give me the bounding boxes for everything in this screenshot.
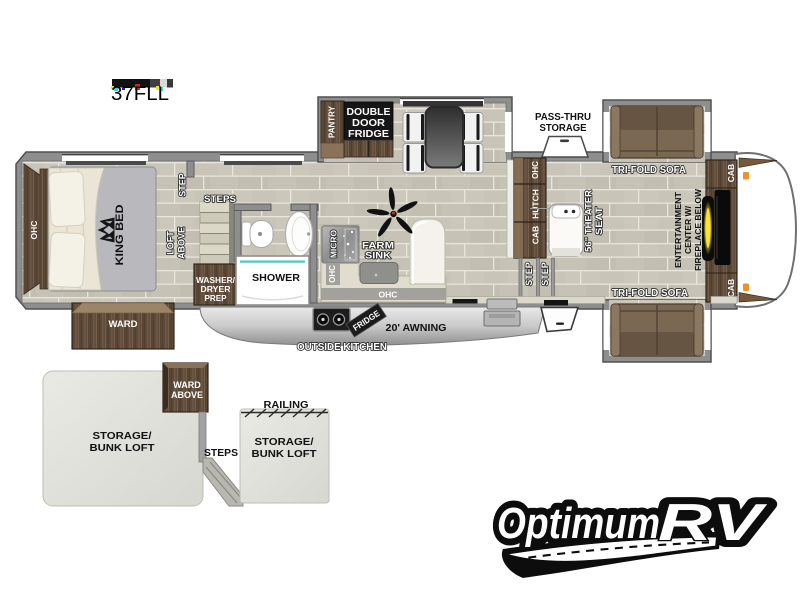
svg-text:OHC: OHC: [531, 161, 540, 179]
svg-text:37FLL: 37FLL: [111, 83, 169, 105]
svg-text:HUTCH: HUTCH: [530, 189, 540, 219]
svg-text:FIREPLACE BELOW: FIREPLACE BELOW: [694, 189, 703, 271]
svg-text:20' AWNING: 20' AWNING: [386, 322, 447, 334]
svg-text:STEP: STEP: [540, 262, 550, 286]
svg-text:WASHER/: WASHER/: [196, 276, 236, 285]
svg-text:WARD: WARD: [108, 319, 137, 330]
svg-text:TRI-FOLD SOFA: TRI-FOLD SOFA: [612, 288, 688, 299]
svg-text:STORAGE/: STORAGE/: [93, 430, 152, 442]
svg-text:DOOR: DOOR: [352, 118, 386, 129]
svg-text:CAB: CAB: [726, 279, 736, 297]
svg-text:STEP: STEP: [524, 262, 534, 286]
svg-text:OHC: OHC: [379, 290, 398, 300]
svg-text:OHC: OHC: [29, 221, 39, 240]
svg-text:SINK: SINK: [365, 251, 392, 261]
svg-text:STEP: STEP: [177, 173, 187, 197]
svg-text:OUTSIDE KITCHEN: OUTSIDE KITCHEN: [297, 341, 387, 353]
svg-text:CAB: CAB: [726, 164, 736, 182]
svg-text:PASS-THRU: PASS-THRU: [535, 112, 591, 123]
svg-text:ABOVE: ABOVE: [176, 227, 186, 259]
svg-text:KING BED: KING BED: [114, 204, 126, 265]
svg-text:MICRO: MICRO: [328, 229, 338, 258]
svg-text:STORAGE: STORAGE: [540, 123, 587, 134]
svg-text:56" THEATER: 56" THEATER: [584, 190, 595, 252]
svg-text:PREP: PREP: [205, 294, 228, 303]
svg-text:CENTER W/: CENTER W/: [684, 205, 693, 254]
svg-text:SEAT: SEAT: [594, 207, 605, 235]
svg-text:TRI-FOLD SOFA: TRI-FOLD SOFA: [612, 165, 686, 176]
svg-text:BUNK LOFT: BUNK LOFT: [252, 448, 318, 460]
svg-text:FARM: FARM: [362, 241, 394, 251]
svg-text:LOFT: LOFT: [165, 231, 175, 255]
svg-text:ENTERTAINMENT: ENTERTAINMENT: [674, 192, 683, 268]
svg-text:STEPS: STEPS: [204, 448, 238, 459]
svg-text:SHOWER: SHOWER: [252, 272, 300, 284]
svg-text:ABOVE: ABOVE: [171, 390, 203, 400]
svg-text:WARD: WARD: [173, 380, 201, 390]
svg-text:FRIDGE: FRIDGE: [348, 129, 389, 140]
svg-text:DOUBLE: DOUBLE: [347, 107, 391, 118]
svg-text:BUNK LOFT: BUNK LOFT: [90, 442, 156, 454]
svg-text:OHC: OHC: [328, 265, 337, 283]
svg-text:RV: RV: [658, 494, 768, 552]
svg-text:STORAGE/: STORAGE/: [255, 436, 314, 448]
svg-text:CAB: CAB: [530, 226, 540, 244]
svg-text:Optimum: Optimum: [497, 499, 660, 548]
svg-text:STEPS: STEPS: [204, 194, 236, 205]
svg-text:PANTRY: PANTRY: [328, 105, 337, 138]
svg-text:DRYER: DRYER: [201, 285, 231, 294]
